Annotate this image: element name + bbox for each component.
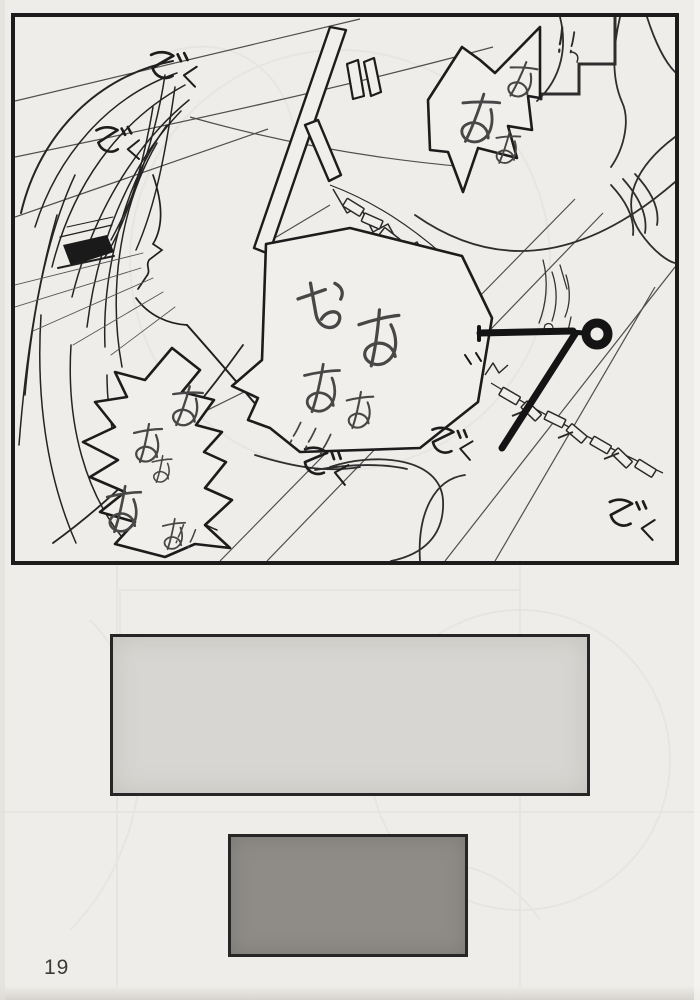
scan-edge-bottom	[0, 986, 700, 1000]
blank-panel-light	[110, 634, 590, 796]
scan-edge-right	[694, 0, 700, 1000]
splash-drips	[539, 260, 571, 334]
speech-bubble-top-right	[428, 27, 540, 192]
double-bar-mark	[347, 58, 381, 99]
page-number: 19	[44, 956, 69, 980]
lace-frill-bottom	[485, 363, 663, 477]
crossed-sticks	[254, 27, 346, 254]
page-root: 19	[0, 0, 700, 1000]
speech-bubble-center	[232, 228, 492, 452]
panel-artwork	[15, 17, 675, 561]
scan-edge-left	[0, 0, 5, 1000]
comic-panel	[11, 13, 679, 565]
blank-panel-dark	[228, 834, 468, 957]
